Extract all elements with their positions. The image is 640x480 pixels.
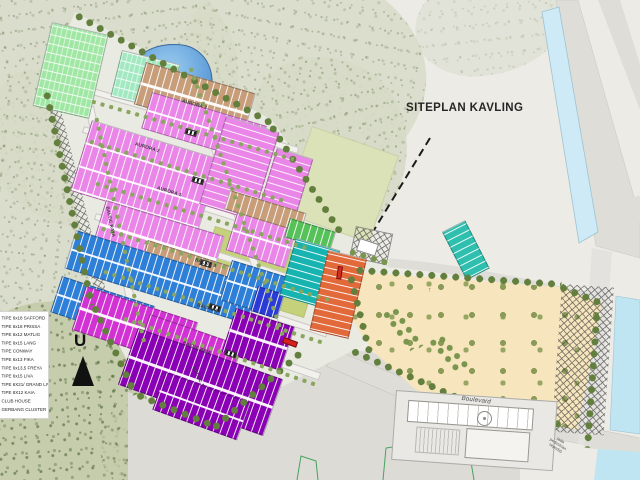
- legend-item: TIPE 6x18 SAFFORD: [2, 314, 50, 322]
- legend-item: TIPE CONWAY: [2, 347, 50, 355]
- entrance-arrow-icon: ↑: [428, 286, 431, 293]
- legend-item: GERBANG CLUSTER: [2, 405, 50, 413]
- legend: TIPE 6x18 SAFFORDTIPE 6x18 PRISSATIPE 6x…: [0, 311, 49, 419]
- legend-item: TIPE 8X12 KAIA: [2, 389, 50, 397]
- river-water: [610, 296, 640, 434]
- siteplan-canvas: AURORA 3 AURORA 2 AURORA 1 BALTIC 3 BALT…: [0, 0, 640, 480]
- building-footprint: [464, 428, 530, 462]
- legend-item: TIPE 6X21/ GRAND LIVA: [2, 380, 50, 388]
- legend-item: TIPE 6x15 LIVA: [2, 372, 50, 380]
- legend-item: TIPE 6x13,5 FREYA: [2, 364, 50, 372]
- legend-items: TIPE 6x18 SAFFORDTIPE 6x18 PRISSATIPE 6x…: [0, 312, 49, 414]
- riverside-fence: [552, 284, 614, 435]
- roundabout: [477, 411, 492, 426]
- page-title: SITEPLAN KAVLING: [406, 102, 523, 114]
- north-label: U: [74, 331, 86, 351]
- legend-item: CLUB HOUSE: [2, 397, 50, 405]
- shop-units: [407, 400, 534, 431]
- legend-item: TIPE 6x13 FIKA: [2, 355, 50, 363]
- legend-item: TIPE 6x15 LANG: [2, 339, 50, 347]
- legend-item: TIPE 6x12 MATLIG: [2, 331, 50, 339]
- legend-item: TIPE 6x18 PRISSA: [2, 322, 50, 330]
- north-arrow-icon: [72, 356, 94, 386]
- parking-lot: [415, 427, 461, 456]
